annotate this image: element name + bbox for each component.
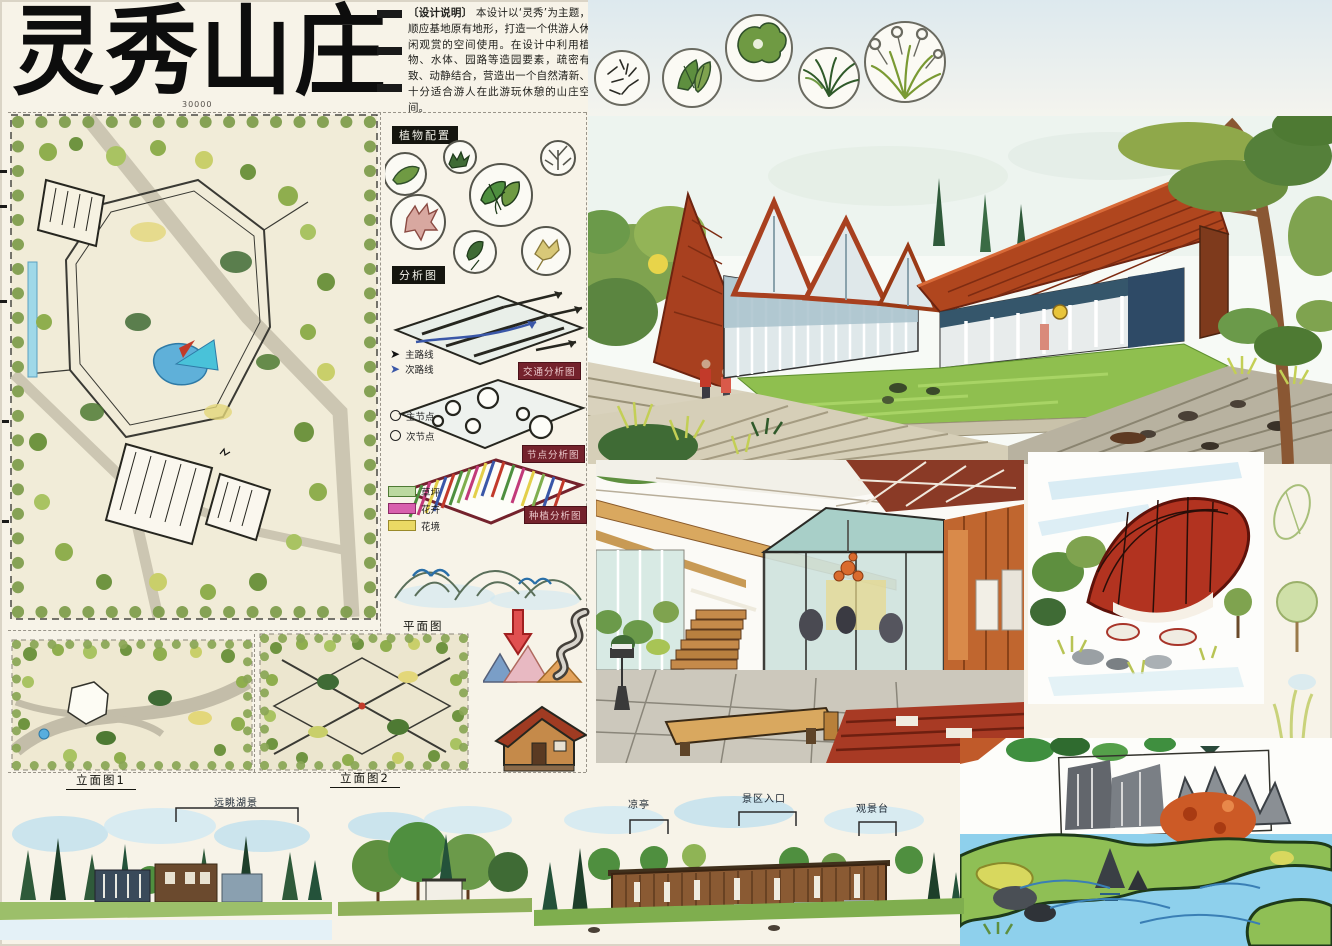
route-main-arrow-icon: ➤: [390, 348, 400, 360]
pavilion-callout: 凉亭: [628, 796, 650, 811]
legend-node-secondary: 次节点: [390, 428, 435, 443]
legend-node-main: 主节点: [390, 408, 435, 423]
entrance-callout: 景区入口: [742, 790, 786, 805]
mountain-sketches: [385, 538, 585, 616]
edge-tick: [2, 420, 9, 423]
legend-label: 花境: [421, 519, 440, 533]
figure-far: [1040, 324, 1049, 350]
design-notes: 〔设计说明〕 本设计以‘灵秀’为主题，顺应基地原有地形，打造一个供游人休闲观赏的…: [408, 6, 590, 116]
person-silhouette: [836, 606, 856, 634]
analysis-label: 分析图: [392, 266, 445, 284]
flower-border-swatch: [388, 520, 416, 531]
legend-label: 主路线: [405, 347, 434, 361]
house-sketch: [492, 695, 587, 775]
small-plan-a: [10, 638, 254, 772]
pond-aerial: [960, 738, 1332, 946]
pavilion-sketch: [1028, 452, 1264, 704]
guide-line: [254, 634, 255, 772]
node-main-circle-icon: [390, 410, 401, 421]
planting-analysis-label: 种植分析图: [524, 506, 587, 524]
margin-sketch-strip: [1262, 452, 1332, 762]
plan-dimension: 30000: [182, 100, 212, 109]
edge-tick: [0, 300, 7, 303]
legend-label: 草坪: [421, 485, 440, 499]
lake-view-callout: 远眺湖景: [214, 794, 258, 809]
elevation2-drawing: [338, 796, 532, 946]
route-secondary-arrow-icon: ➤: [390, 363, 400, 375]
elevation2-label: 立面图2: [330, 770, 400, 788]
plant-palette-mid: [385, 140, 590, 280]
building-silhouettes: [95, 864, 262, 902]
node-secondary-circle-icon: [390, 430, 401, 441]
legend-label: 次节点: [406, 429, 435, 443]
lookout-callout: 观景台: [856, 800, 889, 815]
water-reflection: [0, 920, 332, 940]
lawn-swatch: [388, 486, 416, 497]
legend-lawn: 草坪: [388, 484, 440, 499]
right-wood-wall: [944, 504, 1024, 675]
plant-palette-top: [592, 2, 982, 118]
middle-elevation-drawing: [534, 790, 964, 946]
canal: [28, 262, 37, 377]
legend-flower-border: 花境: [388, 518, 440, 533]
concept-glyphs: [483, 608, 595, 702]
page-title: 灵秀山庄: [12, 4, 388, 102]
legend-label: 花卉: [421, 502, 440, 516]
title-tick: [377, 47, 402, 55]
interior-perspective: [596, 460, 1024, 763]
wall-lamp: [1053, 305, 1067, 319]
left-window: [596, 550, 684, 670]
sun-dot: [648, 254, 668, 274]
ground-band: [338, 898, 532, 916]
edge-tick: [0, 205, 7, 208]
design-notes-heading: 〔设计说明〕: [408, 7, 472, 19]
elevation1-label: 立面图1: [66, 772, 136, 790]
edge-tick: [2, 520, 9, 523]
small-plan-b: [258, 632, 470, 772]
guide-line: [8, 630, 378, 631]
elevation1-drawing: [0, 792, 332, 946]
legend-label: 主节点: [406, 409, 435, 423]
presentation-board: 灵秀山庄 〔设计说明〕 本设计以‘灵秀’为主题，顺应基地原有地形，打造一个供游人…: [0, 0, 1332, 946]
title-tick: [377, 10, 402, 18]
design-notes-body: 本设计以‘灵秀’为主题，顺应基地原有地形，打造一个供游人休闲观赏的空间使用。在设…: [408, 7, 590, 114]
legend-route-main: ➤ 主路线: [390, 346, 434, 361]
edge-tick: [0, 170, 7, 173]
exterior-perspective: [588, 116, 1332, 464]
title-tick: [377, 84, 402, 92]
glass-atrium: [764, 508, 944, 672]
flowers-swatch: [388, 503, 416, 514]
ground-band: [0, 902, 332, 920]
legend-flowers: 花卉: [388, 501, 440, 516]
person-silhouette: [799, 609, 823, 641]
person-silhouette: [879, 613, 903, 643]
master-plan: [8, 112, 380, 622]
